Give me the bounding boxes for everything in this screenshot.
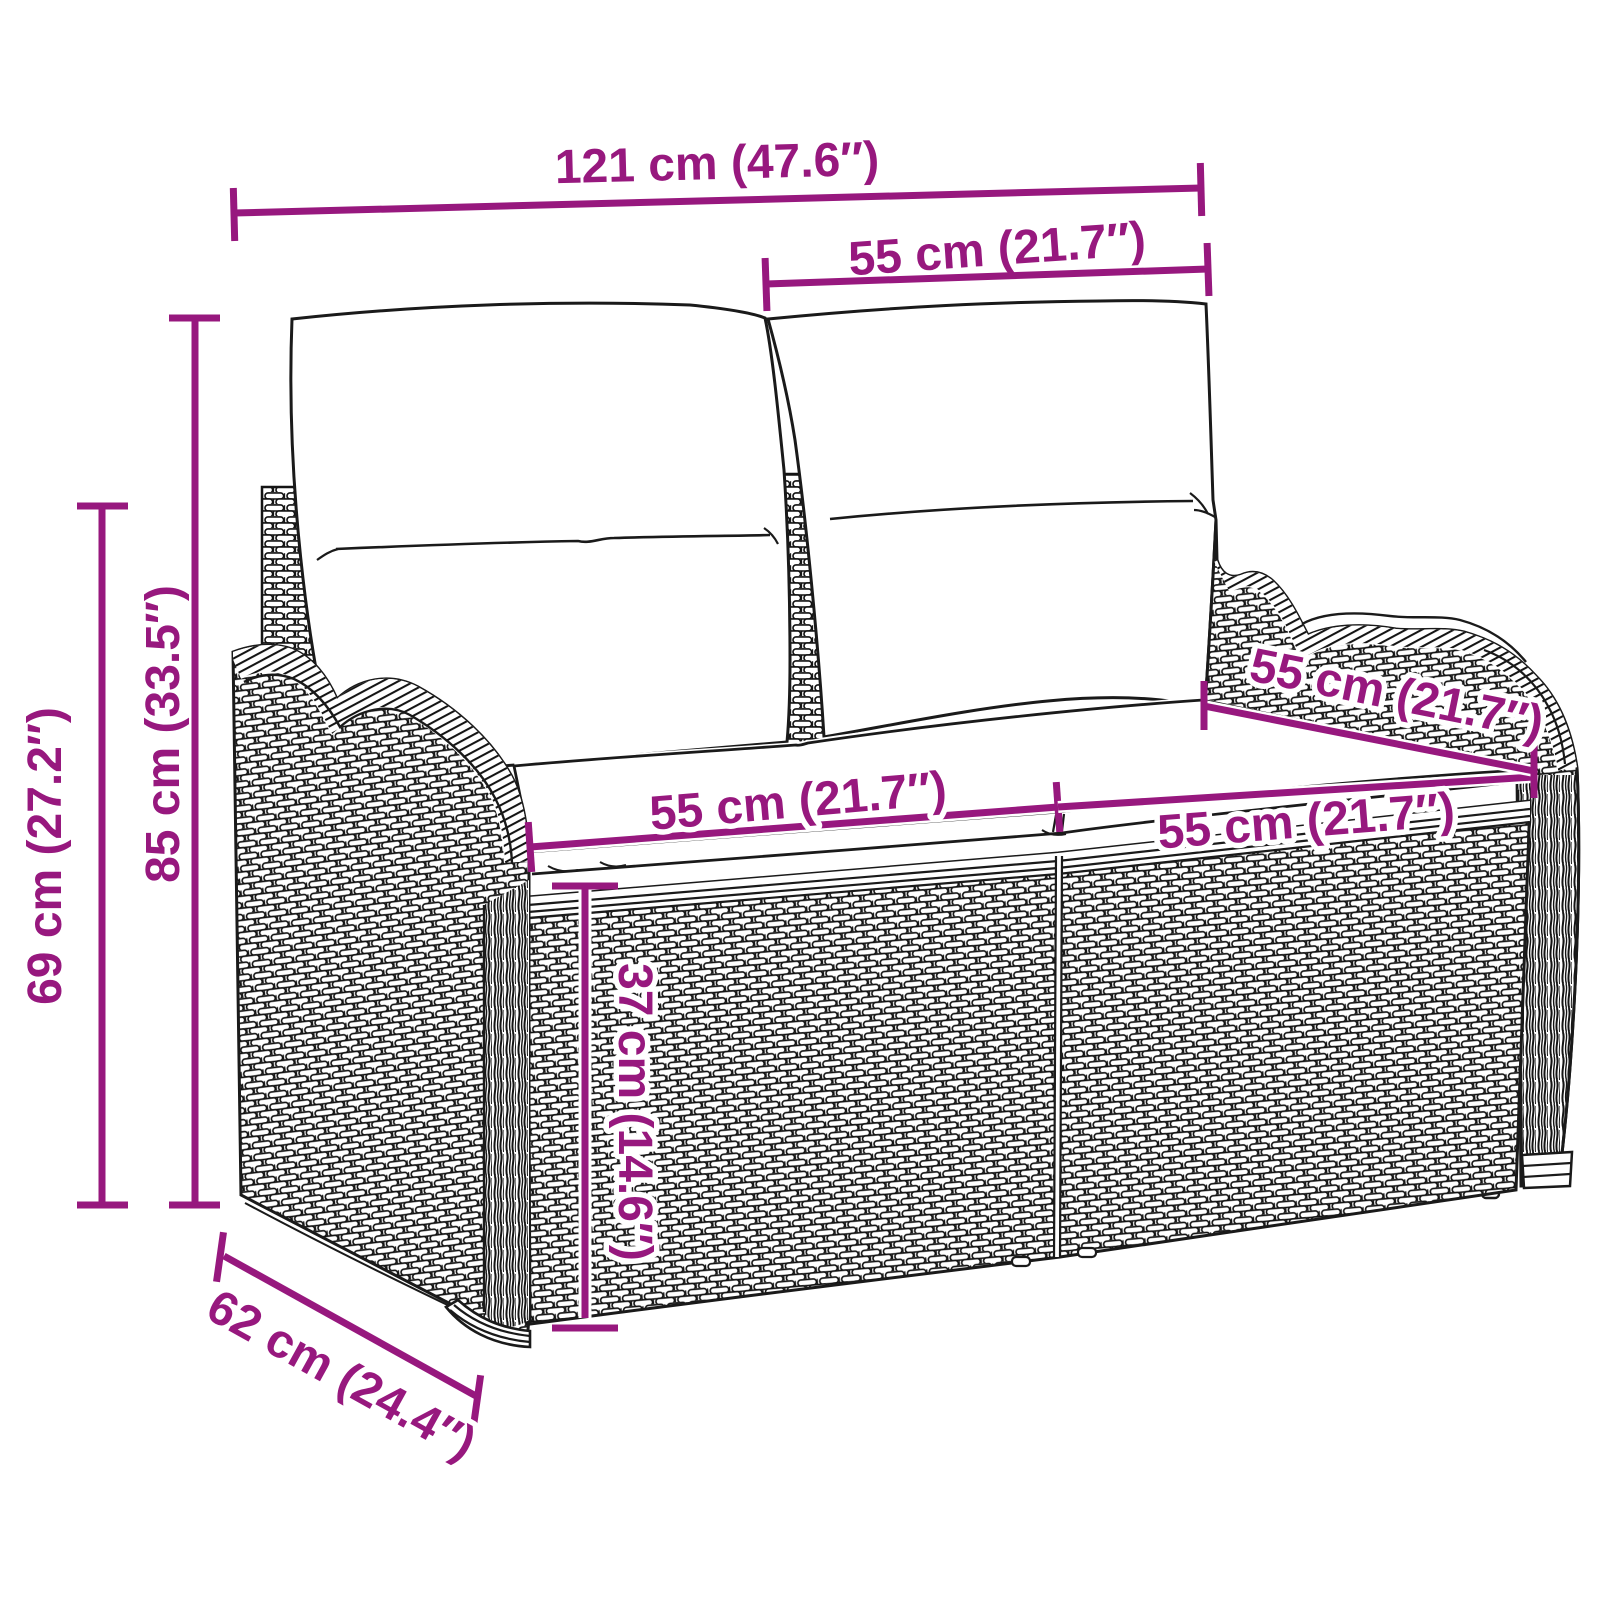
svg-text:37 cm (14.6″): 37 cm (14.6″) — [608, 963, 661, 1261]
svg-text:85 cm (33.5″): 85 cm (33.5″) — [137, 585, 190, 883]
svg-text:121 cm (47.6″): 121 cm (47.6″) — [554, 133, 880, 194]
svg-text:69 cm (27.2″): 69 cm (27.2″) — [19, 707, 72, 1005]
